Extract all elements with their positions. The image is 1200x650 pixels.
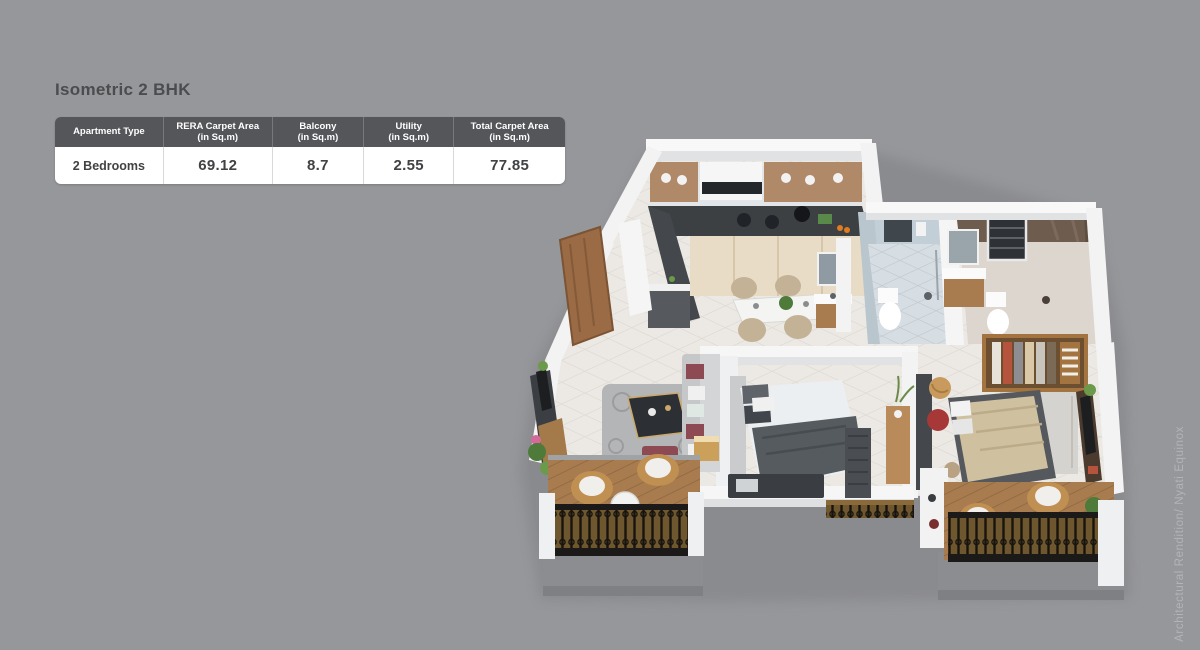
balcony-door-track: [548, 455, 700, 460]
wardrobe: [984, 336, 1086, 390]
balcony-railing: [552, 510, 698, 550]
master-bathroom: [942, 212, 1106, 344]
living-balcony: [539, 454, 704, 559]
railing-post: [688, 492, 704, 556]
vanity-mirror: [948, 230, 978, 264]
watermark-credit: Architectural Rendition/ Nyati Equinox: [1174, 426, 1186, 642]
chimney-hood: [702, 182, 762, 194]
kitchen-counter: [648, 206, 870, 236]
railing-post: [1098, 500, 1124, 586]
floorplan-isometric-render: [0, 0, 1200, 650]
foot-runner-rug: [845, 428, 871, 498]
wicker-pendant-lamp: [929, 377, 951, 399]
accent-chair: [927, 409, 949, 431]
railing-post: [539, 493, 555, 559]
shower-fixture: [1042, 296, 1050, 304]
dining-centerpiece-plant: [779, 296, 793, 310]
bathroom-mirror: [884, 218, 912, 242]
floor-plant: [528, 443, 546, 461]
kitchen-plant: [818, 214, 832, 224]
balcony-railing: [948, 518, 1108, 556]
toilet: [987, 309, 1009, 335]
bathroom-window: [988, 218, 1026, 260]
vanity-cabinet: [944, 279, 984, 307]
toilet: [879, 302, 901, 330]
shower-drain: [924, 292, 932, 300]
coffee-table: [628, 393, 688, 438]
slide-background: { "title": "Isometric 2 BHK", "watermark…: [0, 0, 1200, 650]
bedroom2-window-railing: [826, 500, 914, 518]
